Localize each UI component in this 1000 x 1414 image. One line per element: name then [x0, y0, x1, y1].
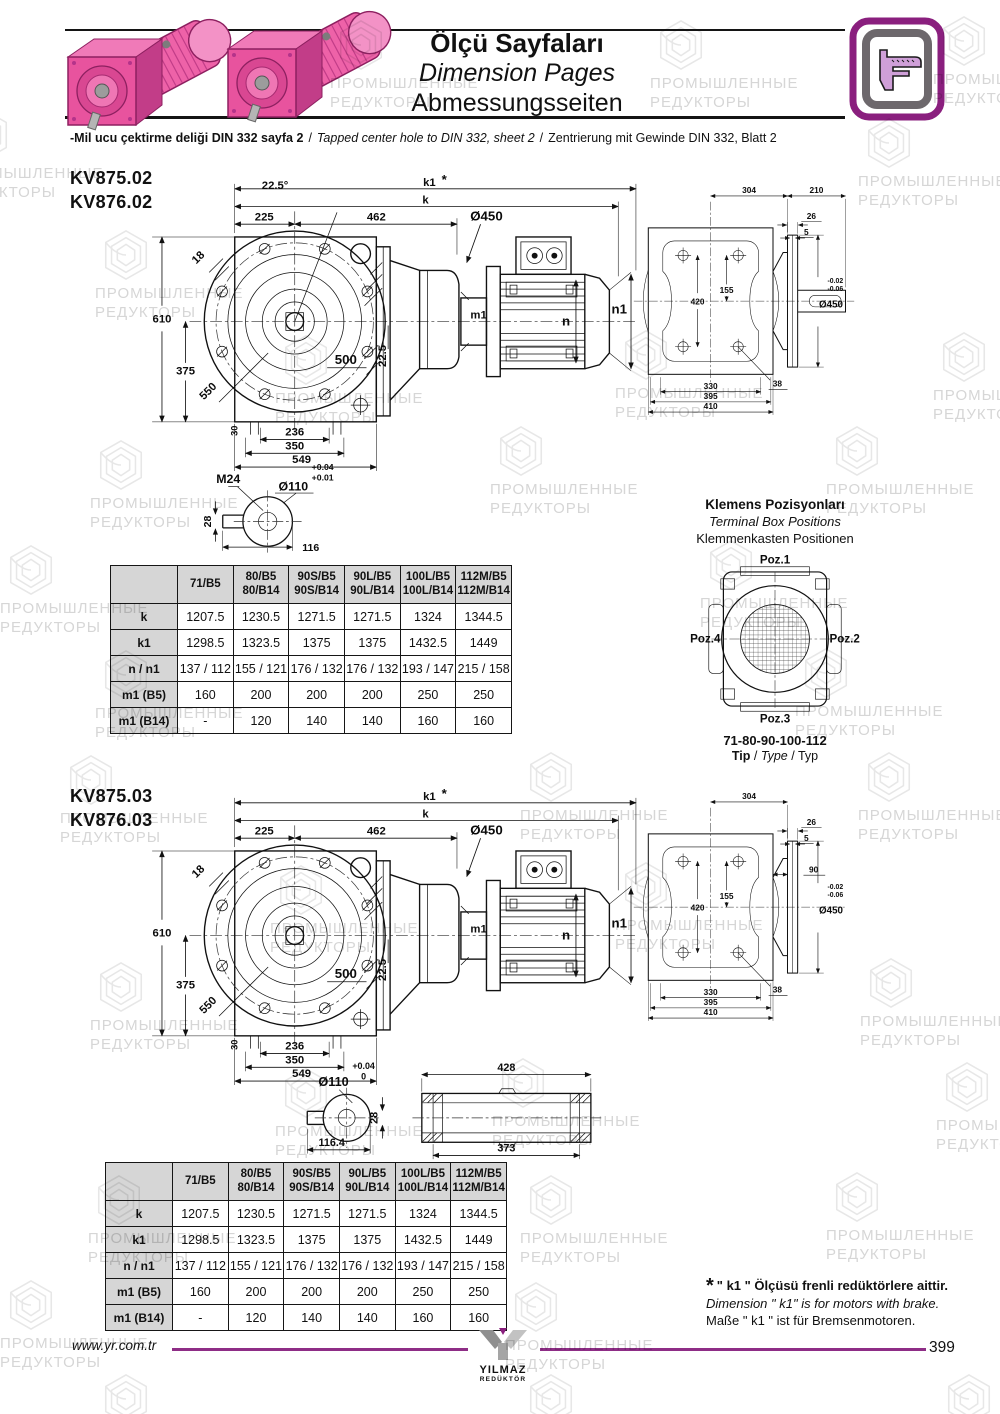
dim-label: 116 [302, 542, 319, 554]
motor-size-column-header: 90L/B5 90L/B14 [339, 1163, 395, 1201]
dimension-row-label: k1 [111, 630, 178, 656]
note-separator: / [535, 131, 548, 145]
watermark-stamp: ПРОМЫШЛЕННЫЕРЕДУКТОРЫ [520, 1173, 668, 1267]
dimension-row-label: m1 (B5) [111, 682, 178, 708]
dim-label: 18 [190, 249, 207, 266]
motor-size-column-header: 100L/B5 100L/B14 [400, 566, 456, 604]
dimension-value-cell: 200 [284, 1279, 340, 1305]
footer-rule-left [172, 1348, 468, 1351]
dim-label: 462 [367, 825, 386, 837]
dim-label: 236 [285, 427, 304, 439]
dim-tolerance: -0.02 [828, 278, 844, 285]
logo-text-top: YILMAZ [468, 1365, 538, 1376]
dim-label: k1 [423, 177, 436, 189]
table-row: n / n1137 / 112155 / 121176 / 132176 / 1… [106, 1253, 507, 1279]
dim-label: 330 [704, 381, 718, 391]
dim-label: 550 [198, 995, 220, 1017]
type-caption-en: Type [761, 749, 788, 763]
dim-label: 26 [807, 817, 817, 827]
dimension-value-cell: 140 [339, 1305, 395, 1331]
page-title-english: Dimension Pages [378, 58, 656, 88]
dim-label: 395 [704, 997, 718, 1007]
front-drawing-2: k1 * k 225 462 Ø450 610 375 18 550 500 [140, 790, 652, 1085]
watermark-stamp: ПРОМЫШЛЕННЫЕРЕДУКТОРЫ [860, 956, 1000, 1050]
hollow-shaft-detail: +0.04 0 Ø110 28 116.4 428 373 [290, 1054, 610, 1162]
shaft-detail-1: M24 +0.04 +0.01 Ø110 28 116 [180, 450, 392, 560]
dimension-row-label: m1 (B14) [111, 708, 178, 734]
dimension-value-cell: 1298.5 [173, 1227, 229, 1253]
dim-label: 500 [335, 352, 357, 367]
dim-label: 330 [704, 987, 718, 997]
dimension-value-cell: - [173, 1305, 229, 1331]
dim-label: 236 [285, 1041, 304, 1053]
dim-tolerance: +0.01 [312, 472, 334, 482]
dim-label: m1 [470, 310, 486, 322]
dimension-value-cell: 176 / 132 [284, 1253, 340, 1279]
table-row: n / n1137 / 112155 / 121176 / 132176 / 1… [111, 656, 512, 682]
footnote-german: Maße " k1 " ist für Bremsenmotoren. [706, 1312, 976, 1329]
dim-label: 38 [773, 379, 783, 389]
dim-label: 155 [720, 891, 734, 901]
dimension-value-cell: 200 [289, 682, 345, 708]
dim-label: 550 [198, 381, 220, 403]
dimension-value-cell: 1298.5 [178, 630, 234, 656]
website-url: www.yr.com.tr [72, 1338, 156, 1353]
dim-label: 375 [176, 366, 195, 378]
table-row: m1 (B5)160200200200250250 [111, 682, 512, 708]
dim-label: 428 [497, 1062, 515, 1074]
type-caption-tr: Tip [732, 749, 751, 763]
dimension-value-cell: 1271.5 [289, 604, 345, 630]
dim-label: Ø450 [819, 906, 843, 917]
dimension-value-cell: 155 / 121 [233, 656, 289, 682]
table-row: m1 (B14)-120140140160160 [106, 1305, 507, 1331]
dimension-value-cell: 160 [451, 1305, 507, 1331]
dim-label: Ø110 [279, 479, 309, 493]
dimension-value-cell: 137 / 112 [173, 1253, 229, 1279]
dim-label: 28 [369, 1112, 381, 1124]
dimension-value-cell: 215 / 158 [451, 1253, 507, 1279]
dim-star: * [442, 172, 448, 187]
dimension-value-cell: 120 [228, 1305, 284, 1331]
dim-label: 5 [804, 227, 809, 237]
page-number: 399 [929, 1339, 955, 1357]
dim-label: 462 [367, 211, 386, 223]
dim-label: 373 [497, 1143, 515, 1155]
dimension-row-label: n / n1 [111, 656, 178, 682]
dimension-row-label: k [111, 604, 178, 630]
poz4-label: Poz.4 [690, 632, 721, 645]
side-dimensions-1: 304 210 26 5 420 155 -0.02 -0.06 Ø450 [648, 185, 845, 415]
dim-label: 225 [255, 211, 274, 223]
motor-size-column-header: 80/B5 80/B14 [233, 566, 289, 604]
poz2-label: Poz.2 [829, 632, 859, 645]
dim-label: 610 [153, 314, 172, 326]
watermark-stamp: ПРОМЫШЛЕННЫЕРЕДУКТОРЫ [938, 1372, 1000, 1414]
dimension-value-cell: 120 [233, 708, 289, 734]
dimension-value-cell: 250 [395, 1279, 451, 1305]
motor-size-column-header: 90S/B5 90S/B14 [289, 566, 345, 604]
side-drawing-1: 304 210 26 5 420 155 -0.02 -0.06 Ø450 [628, 184, 860, 424]
dim-label: 225 [255, 825, 274, 837]
terminal-box-sizes: 71-80-90-100-112 [652, 733, 898, 748]
dim-label: 90 [809, 864, 819, 874]
din-note: -Mil ucu çektirme deliği DIN 332 sayfa 2… [70, 131, 777, 145]
terminal-box-title: Klemens Pozisyonları [652, 496, 898, 513]
terminal-box-title-german: Klemmenkasten Positionen [652, 530, 898, 547]
dim-label: 22.5 [377, 959, 389, 981]
dimension-value-cell: 1375 [339, 1227, 395, 1253]
dimension-value-cell: 215 / 158 [456, 656, 512, 682]
dim-label: 410 [704, 1007, 718, 1017]
dim-label: 26 [807, 211, 817, 221]
side-dimensions-2: 304 26 5 420 155 90 -0.02 -0.06 Ø450 [648, 791, 843, 1021]
motor-size-column-header: 90S/B5 90S/B14 [284, 1163, 340, 1201]
dimension-value-cell: 1375 [284, 1227, 340, 1253]
dimension-value-cell: 1375 [289, 630, 345, 656]
dimension-value-cell: 160 [395, 1305, 451, 1331]
dimension-value-cell: 250 [451, 1279, 507, 1305]
dimension-value-cell: 250 [456, 682, 512, 708]
watermark-stamp: ПРОМЫШЛЕННЫЕРЕДУКТОРЫ [933, 330, 1000, 424]
motor-size-column-header: 71/B5 [173, 1163, 229, 1201]
dim-label: 155 [720, 285, 734, 295]
dimension-value-cell: 250 [400, 682, 456, 708]
dimension-value-cell: 1449 [456, 630, 512, 656]
dimension-value-cell: 1230.5 [228, 1201, 284, 1227]
dim-label: 22.5° [262, 180, 289, 192]
dim-label: 28 [202, 516, 214, 528]
dimension-value-cell: 176 / 132 [344, 656, 400, 682]
dimension-value-cell: 160 [456, 708, 512, 734]
logo-text-bottom: REDÜKTÖR [468, 1376, 538, 1384]
dimension-value-cell: 1344.5 [451, 1201, 507, 1227]
dim-label: 304 [742, 185, 756, 195]
table-row: k1207.51230.51271.51271.513241344.5 [111, 604, 512, 630]
dimension-value-cell: 176 / 132 [339, 1253, 395, 1279]
dim-label: 116.4 [318, 1137, 344, 1149]
dimension-value-cell: 200 [228, 1279, 284, 1305]
front-dimensions-2: k1 * k 225 462 Ø450 610 375 18 550 500 [152, 786, 636, 1085]
dimension-value-cell: 1449 [451, 1227, 507, 1253]
yilmaz-logo-icon [476, 1328, 530, 1360]
footer-rule-right [540, 1348, 926, 1351]
dimension-value-cell: 1432.5 [400, 630, 456, 656]
dimension-value-cell: 1230.5 [233, 604, 289, 630]
dim-label: Ø110 [318, 1075, 348, 1089]
dim-tolerance: 0 [361, 1071, 366, 1081]
shaft-bore-dimensions: +0.04 0 Ø110 28 116.4 428 373 [307, 1061, 602, 1159]
dimension-value-cell: 1207.5 [178, 604, 234, 630]
dim-label: 420 [691, 903, 705, 913]
dim-tolerance: -0.06 [828, 892, 844, 899]
caliper-icon [848, 16, 946, 122]
k1-footnote: *" k1 " Ölçüsü frenli redüktörlere aitti… [706, 1277, 976, 1329]
table-row: m1 (B14)-120140140160160 [111, 708, 512, 734]
dim-label: n1 [611, 302, 627, 317]
dim-label: Ø450 [819, 300, 843, 311]
dimension-value-cell: 200 [344, 682, 400, 708]
dim-label: k [422, 809, 429, 821]
din-note-english: Tapped center hole to DIN 332, sheet 2 [317, 131, 535, 145]
din-note-turkish: -Mil ucu çektirme deliği DIN 332 sayfa 2 [70, 131, 303, 145]
terminal-box-block: Klemens Pozisyonları Terminal Box Positi… [652, 496, 898, 763]
dim-label: 210 [810, 185, 824, 195]
page-title: Ölçü Sayfaları [378, 28, 656, 58]
table-corner-cell [106, 1163, 173, 1201]
motor-size-column-header: 71/B5 [178, 566, 234, 604]
dimension-value-cell: 160 [173, 1279, 229, 1305]
dim-star: * [442, 786, 448, 801]
dimension-value-cell: 1207.5 [173, 1201, 229, 1227]
watermark-stamp: ПРОМЫШЛЕННЫЕРЕДУКТОРЫ [826, 1170, 974, 1264]
motor-size-column-header: 90L/B5 90L/B14 [344, 566, 400, 604]
dimension-value-cell: 1323.5 [228, 1227, 284, 1253]
motor-size-column-header: 100L/B5 100L/B14 [395, 1163, 451, 1201]
dimension-value-cell: 176 / 132 [289, 656, 345, 682]
footnote-star: * [706, 1275, 717, 1297]
table-row: k11298.51323.5137513751432.51449 [106, 1227, 507, 1253]
dim-label: 420 [691, 297, 705, 307]
gear-unit-side-geometry [634, 808, 846, 991]
watermark-stamp: ПРОМЫШЛЕННЫЕРЕДУКТОРЫ [520, 1372, 668, 1414]
watermark-stamp: ПРОМЫШЛЕННЫЕРЕДУКТОРЫ [858, 116, 1000, 210]
catalog-page: ПРОМЫШЛЕННЫЕРЕДУКТОРЫПРОМЫШЛЕННЫЕРЕДУКТО… [0, 0, 1000, 1414]
dimension-value-cell: 155 / 121 [228, 1253, 284, 1279]
dimension-value-cell: 1432.5 [395, 1227, 451, 1253]
dim-label: n [562, 927, 570, 942]
dimension-value-cell: 160 [400, 708, 456, 734]
dim-tolerance: +0.04 [352, 1061, 375, 1071]
dimension-table-1: 71/B580/B5 80/B1490S/B5 90S/B1490L/B5 90… [110, 565, 512, 734]
dim-tolerance: -0.06 [828, 286, 844, 293]
dim-label: 500 [335, 966, 357, 981]
footnote-english: Dimension " k1" is for motors with brake… [706, 1295, 976, 1312]
page-title-block: Ölçü Sayfaları Dimension Pages Abmessung… [378, 28, 656, 118]
poz3-label: Poz.3 [760, 712, 791, 725]
dim-label: Ø450 [470, 208, 502, 223]
dimension-row-label: k1 [106, 1227, 173, 1253]
watermark-stamp: ПРОМЫШЛЕННЫЕРЕДУКТОРЫ [95, 1372, 243, 1414]
table-corner-cell [111, 566, 178, 604]
dimension-value-cell: 200 [233, 682, 289, 708]
watermark-stamp: ПРОМЫШЛЕННЫЕРЕДУКТОРЫ [650, 18, 798, 112]
dimension-value-cell: 160 [178, 682, 234, 708]
dim-label: 410 [704, 401, 718, 411]
dimension-value-cell: 137 / 112 [178, 656, 234, 682]
dimension-value-cell: 1271.5 [339, 1201, 395, 1227]
shaft-detail-dimensions: M24 +0.04 +0.01 Ø110 28 116 [202, 462, 334, 554]
dim-label: 304 [742, 791, 756, 801]
dim-label: 610 [153, 928, 172, 940]
front-dimensions-1: k1 * k 225 462 Ø450 22.5° 610 375 18 [152, 172, 636, 471]
dim-label: 38 [773, 985, 783, 995]
dim-tolerance: +0.04 [312, 462, 334, 472]
side-drawing-2: 304 26 5 420 155 90 -0.02 -0.06 Ø450 [628, 790, 860, 1030]
dim-label: 18 [190, 863, 207, 880]
dim-label: 5 [804, 833, 809, 843]
dim-label: 375 [176, 980, 195, 992]
front-drawing-1: k1 * k 225 462 Ø450 22.5° 610 375 18 [140, 176, 652, 471]
dimension-value-cell: 140 [289, 708, 345, 734]
type-separator: / [754, 749, 757, 763]
type-separator: / [791, 749, 794, 763]
watermark-stamp: ПРОМЫШЛЕННЫЕРЕДУКТОРЫ [936, 1060, 1000, 1154]
type-caption: Tip / Type / Typ [652, 749, 898, 763]
motor-size-column-header: 112M/B5 112M/B14 [451, 1163, 507, 1201]
dimension-value-cell: 1324 [395, 1201, 451, 1227]
dim-label: M24 [216, 472, 240, 486]
table-row: k11298.51323.5137513751432.51449 [111, 630, 512, 656]
dimension-row-label: k [106, 1201, 173, 1227]
dimension-row-label: m1 (B5) [106, 1279, 173, 1305]
poz1-label: Poz.1 [760, 553, 791, 566]
table-row: m1 (B5)160200200200250250 [106, 1279, 507, 1305]
dimension-row-label: m1 (B14) [106, 1305, 173, 1331]
dim-tolerance: -0.02 [828, 884, 844, 891]
dimension-value-cell: 1271.5 [344, 604, 400, 630]
motor-size-column-header: 112M/B5 112M/B14 [456, 566, 512, 604]
gear-unit-side-geometry [634, 202, 854, 385]
page-title-german: Abmessungsseiten [378, 88, 656, 118]
din-note-german: Zentrierung mit Gewinde DIN 332, Blatt 2 [548, 131, 777, 145]
motor-size-column-header: 80/B5 80/B14 [228, 1163, 284, 1201]
dimension-value-cell: 1271.5 [284, 1201, 340, 1227]
shaft-detail-geometry [223, 490, 302, 552]
dim-label: m1 [470, 924, 486, 936]
type-caption-de: Typ [798, 749, 818, 763]
dimension-value-cell: - [178, 708, 234, 734]
dim-label: 395 [704, 391, 718, 401]
dimension-row-label: n / n1 [106, 1253, 173, 1279]
watermark-stamp: ПРОМЫШЛЕННЫЕРЕДУКТОРЫ [858, 750, 1000, 844]
terminal-box-diagram: Poz.1 Poz.4 Poz.2 Poz.3 [667, 553, 883, 725]
dimension-value-cell: 1323.5 [233, 630, 289, 656]
terminal-box-title-english: Terminal Box Positions [652, 513, 898, 530]
dim-label: 22.5 [377, 345, 389, 367]
dimension-table-2: 71/B580/B5 80/B1490S/B5 90S/B1490L/B5 90… [105, 1162, 507, 1331]
dimension-value-cell: 200 [339, 1279, 395, 1305]
dimension-value-cell: 140 [344, 708, 400, 734]
dimension-value-cell: 140 [284, 1305, 340, 1331]
dimension-value-cell: 1375 [344, 630, 400, 656]
dimension-value-cell: 193 / 147 [400, 656, 456, 682]
dim-label: Ø450 [470, 822, 502, 837]
dim-label: k1 [423, 791, 436, 803]
gearmotor-photos [58, 5, 388, 127]
dimension-value-cell: 1324 [400, 604, 456, 630]
yilmaz-logo: YILMAZ REDÜKTÖR [468, 1328, 538, 1384]
footnote-turkish: " k1 " Ölçüsü frenli redüktörlere aittir… [717, 1278, 948, 1293]
table-row: k1207.51230.51271.51271.513241344.5 [106, 1201, 507, 1227]
dimension-value-cell: 193 / 147 [395, 1253, 451, 1279]
note-separator: / [303, 131, 316, 145]
dimension-value-cell: 1344.5 [456, 604, 512, 630]
dim-label: k [422, 195, 429, 207]
dim-label: n [562, 313, 570, 328]
dim-label: n1 [611, 916, 627, 931]
